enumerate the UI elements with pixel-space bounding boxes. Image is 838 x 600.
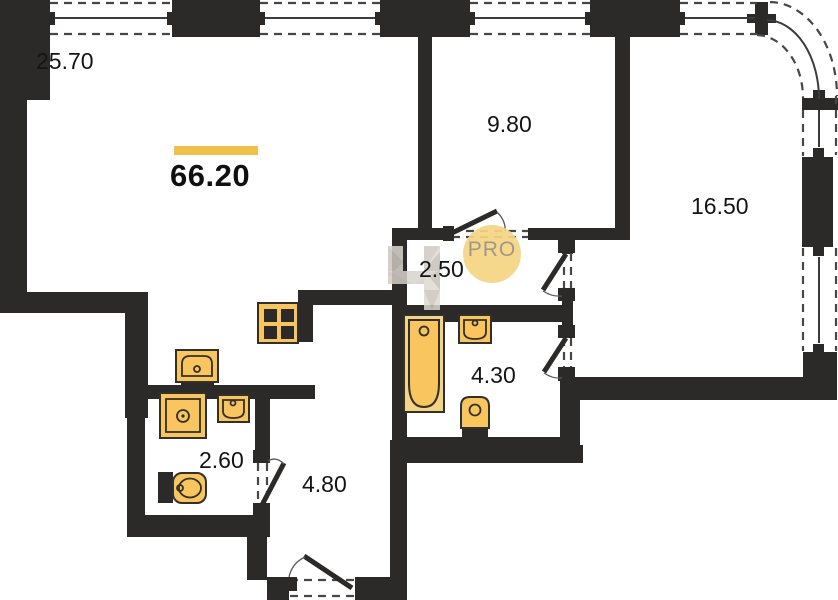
pro-watermark-badge: PRO xyxy=(463,225,521,283)
bath-sink-icon xyxy=(459,315,491,343)
bathtub-icon xyxy=(404,315,444,412)
stove-icon xyxy=(258,303,298,343)
door-bedroom2 xyxy=(543,240,575,301)
room-label-living: 25.70 xyxy=(36,48,94,75)
room-label-entry-hall: 4.80 xyxy=(302,471,347,498)
door-entrance xyxy=(288,556,355,596)
bath-toilet-icon xyxy=(461,397,489,441)
total-area-label: 66.20 xyxy=(170,158,250,194)
wc-sink-icon xyxy=(218,395,249,422)
washing-machine-icon xyxy=(160,393,206,438)
floor-plan-page: 66.20 25.70 9.80 16.50 2.50 4.30 2.60 4.… xyxy=(0,0,838,600)
walls xyxy=(0,0,838,600)
total-area-accent-bar xyxy=(174,146,258,155)
room-label-bedroom2: 16.50 xyxy=(691,193,749,220)
door-bathroom xyxy=(544,325,575,381)
floor-plan-drawing xyxy=(0,0,838,600)
pro-watermark-text: PRO xyxy=(468,238,517,262)
wc-toilet-icon xyxy=(158,472,206,503)
door-wc xyxy=(253,450,284,516)
room-label-hall: 2.50 xyxy=(419,256,464,283)
room-label-bedroom: 9.80 xyxy=(487,111,532,138)
room-label-bathroom: 4.30 xyxy=(471,362,516,389)
room-label-wc: 2.60 xyxy=(199,447,244,474)
kitchen-sink-icon xyxy=(176,350,218,391)
